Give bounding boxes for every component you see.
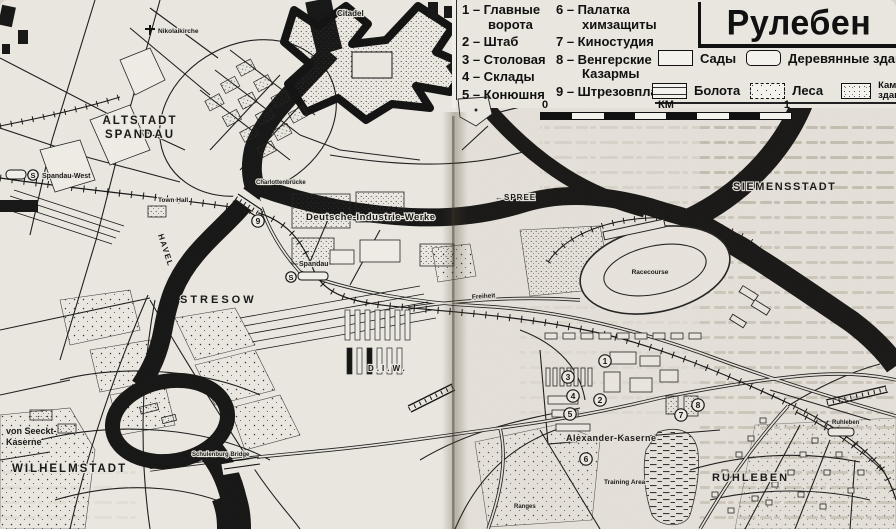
map-title-box: Рулебен bbox=[698, 2, 896, 48]
scanned-map-page: S S 1 2 3 4 5 6 7 8 9 Nikolaikirche Cita… bbox=[0, 0, 896, 529]
scale-bar-labels: 0 КМ 1 bbox=[540, 99, 792, 111]
legend-symbol-swamps: Болота bbox=[652, 83, 740, 99]
legend-item-7: 7 – Киностудия bbox=[556, 35, 686, 50]
legend-separator bbox=[456, 0, 457, 100]
legend-item-1: 1 – Главные ворота bbox=[462, 3, 558, 32]
legend-item-3: 3 – Столовая bbox=[462, 53, 558, 68]
scale-unit-label: КМ bbox=[540, 99, 792, 111]
stone-buildings-swatch-icon bbox=[841, 83, 871, 99]
scale-bar: 0 КМ 1 bbox=[540, 99, 792, 120]
legend-symbol-gardens: Сады bbox=[658, 50, 736, 66]
scale-bar-segments bbox=[540, 112, 792, 120]
legend-symbols-row1: Сады Деревянные здания bbox=[658, 50, 896, 66]
gardens-label: Сады bbox=[700, 51, 736, 66]
legend-item-6: 6 – Палатка химзащиты bbox=[556, 3, 686, 32]
swamps-swatch-icon bbox=[652, 83, 687, 99]
swamps-label: Болота bbox=[694, 83, 740, 98]
legend-item-4: 4 – Склады bbox=[462, 70, 558, 85]
legend-symbol-stone-buildings: Каменные здания bbox=[841, 81, 896, 100]
forests-swatch-icon bbox=[750, 83, 785, 99]
legend-symbol-forests: Леса bbox=[750, 83, 823, 99]
forests-label: Леса bbox=[792, 83, 823, 98]
gardens-swatch-icon bbox=[658, 50, 693, 66]
legend-column-1: 1 – Главные ворота 2 – Штаб 3 – Столовая… bbox=[462, 3, 558, 105]
map-title: Рулебен bbox=[727, 3, 872, 44]
legend-item-2: 2 – Штаб bbox=[462, 35, 558, 50]
legend-symbols-row2: Болота Леса Каменные здания bbox=[652, 81, 896, 100]
wooden-buildings-label: Деревянные здания bbox=[788, 51, 896, 66]
wooden-buildings-swatch-icon bbox=[746, 50, 781, 66]
legend-symbol-wooden-buildings: Деревянные здания bbox=[746, 50, 896, 66]
stone-buildings-label: Каменные здания bbox=[878, 81, 896, 100]
